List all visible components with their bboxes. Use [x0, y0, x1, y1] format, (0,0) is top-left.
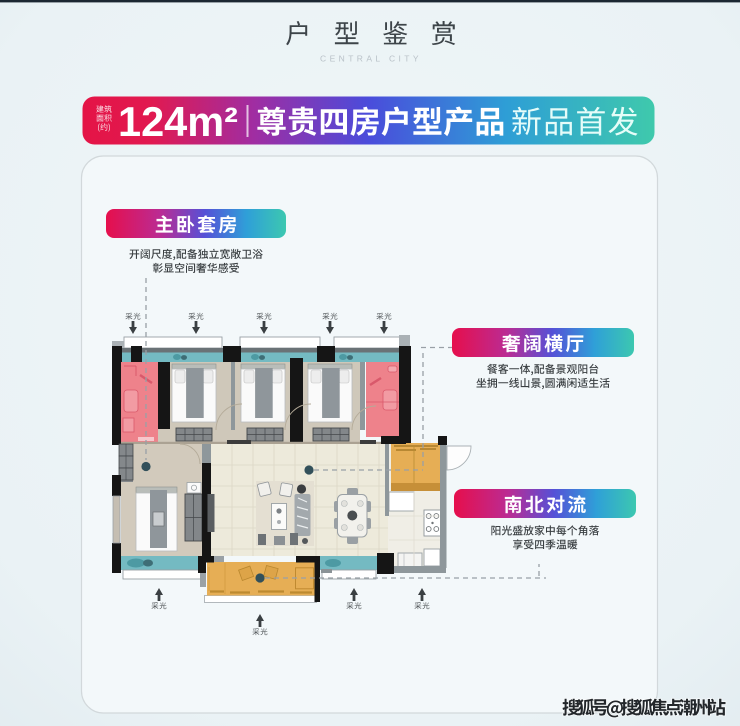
svg-text:CENTRAL CITY: CENTRAL CITY	[320, 54, 422, 64]
svg-text:124m²: 124m²	[118, 98, 238, 145]
